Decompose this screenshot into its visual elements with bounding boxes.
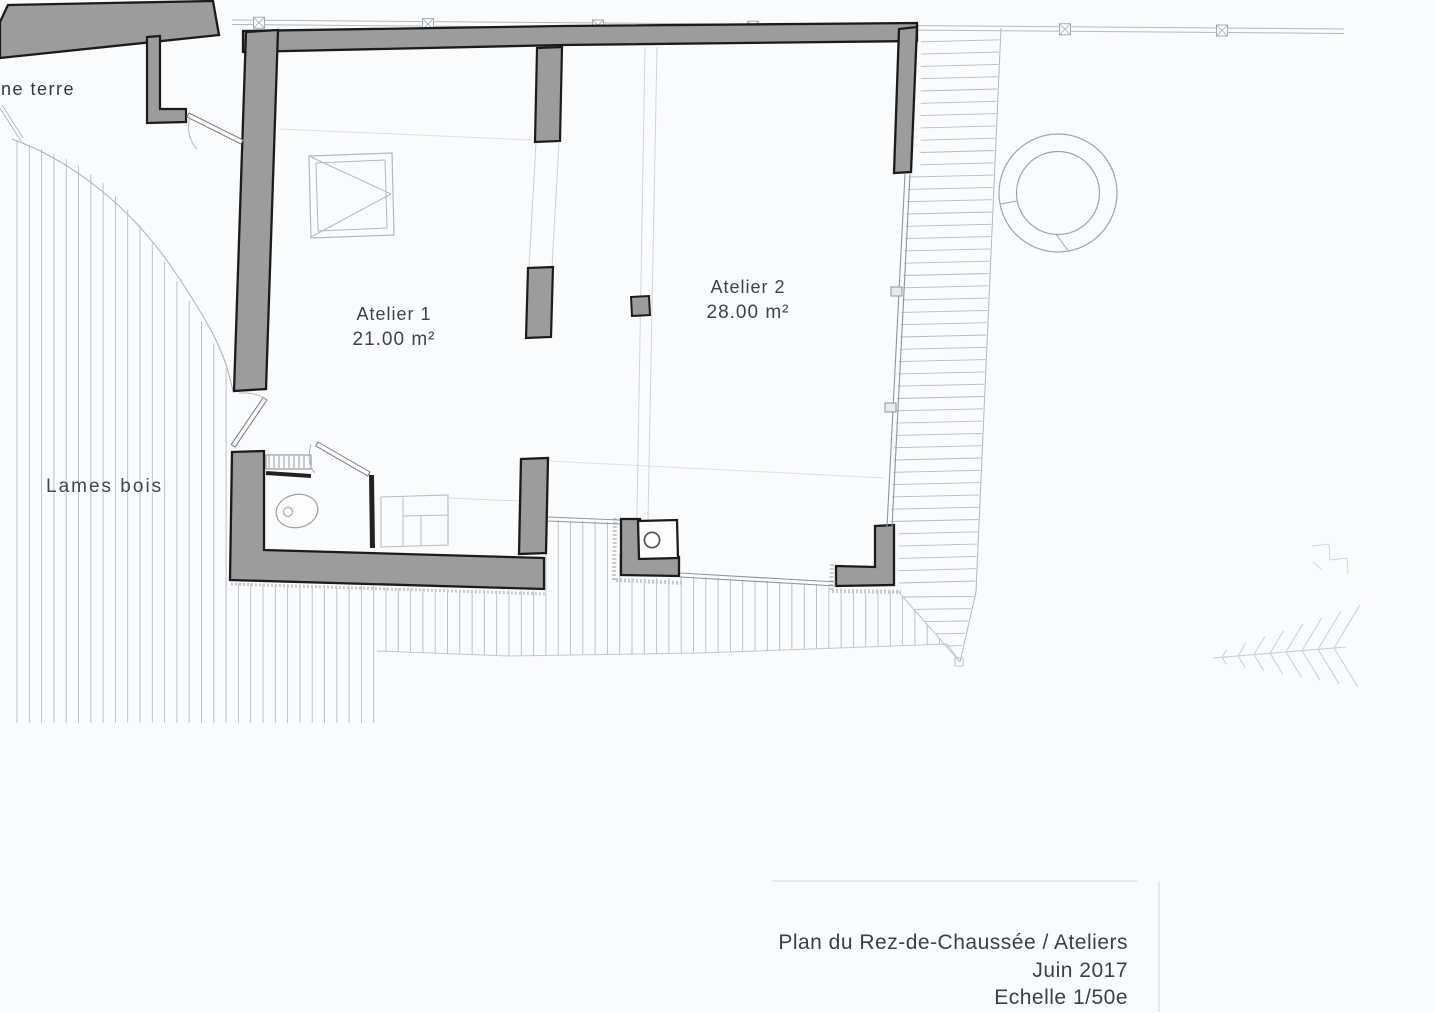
deck-hatching (17, 40, 999, 723)
floor-plan-canvas (0, 0, 1434, 1013)
room-label-atelier-2: Atelier 2 28.00 m² (688, 275, 808, 325)
vegetation-symbol (1213, 544, 1360, 687)
well-circle (999, 134, 1117, 252)
room-area: 28.00 m² (688, 300, 808, 325)
floor-plan-drawing: ne terre Lames bois Atelier 1 21.00 m² A… (0, 0, 1434, 1013)
ground-annotation-lames-bois: Lames bois (46, 476, 163, 498)
title-block: Plan du Rez-de-Chaussée / Ateliers Juin … (704, 929, 1128, 1012)
title-block-title: Plan du Rez-de-Chaussée / Ateliers (704, 929, 1128, 957)
title-block-scale: Echelle 1/50e (704, 984, 1128, 1012)
fixtures (266, 153, 678, 559)
room-label-atelier-1: Atelier 1 21.00 m² (329, 302, 459, 352)
doors (187, 113, 370, 476)
glazing (548, 174, 910, 586)
site-annotation-terre: ne terre (1, 79, 75, 100)
room-name: Atelier 2 (688, 275, 808, 300)
room-area: 21.00 m² (329, 327, 459, 352)
room-name: Atelier 1 (329, 302, 459, 327)
toilet-icon (273, 490, 321, 531)
title-block-date: Juin 2017 (704, 957, 1128, 985)
